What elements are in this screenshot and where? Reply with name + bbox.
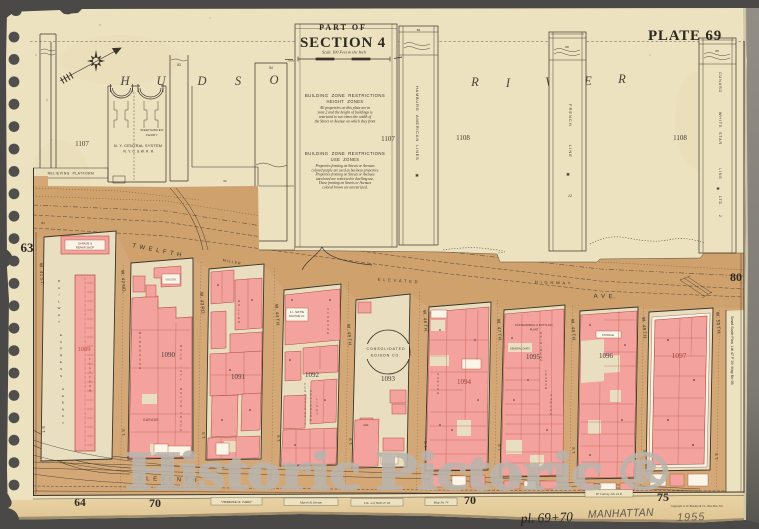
svg-text:1095: 1095 <box>526 353 541 361</box>
svg-text:86: 86 <box>417 28 421 32</box>
svg-text:Small Scale Plan Lib 47 P 39: Small Scale Plan Lib 47 P 39 Map No 98 <box>730 316 734 385</box>
svg-text:Copyright, G. W. Bromley & Co.: Copyright, G. W. Bromley & Co., New York… <box>671 505 724 508</box>
svg-text:R: R <box>139 340 141 344</box>
svg-text:✱: ✱ <box>415 173 419 178</box>
svg-text:1089: 1089 <box>78 346 91 353</box>
svg-text:G: G <box>550 394 552 397</box>
svg-text:E: E <box>60 360 62 364</box>
svg-text:X: X <box>60 340 62 344</box>
svg-text:the Street or Avenue on which: the Street or Avenue on which they front <box>315 120 377 124</box>
svg-text:F. L. SMITHE: F. L. SMITHE <box>290 311 305 314</box>
svg-text:H: H <box>119 74 130 88</box>
svg-text:O: O <box>327 316 329 319</box>
svg-text:O: O <box>238 304 240 307</box>
svg-text:BUILDING ZONE RESTRICTIONS: BUILDING ZONE RESTRICTIONS <box>305 151 385 156</box>
svg-text:63: 63 <box>21 240 35 255</box>
svg-text:STORAGE: STORAGE <box>602 334 615 337</box>
svg-text:W: W <box>58 306 61 310</box>
svg-text:R: R <box>437 381 439 384</box>
svg-text:USE ZONES: USE ZONES <box>331 157 360 162</box>
svg-text:R: R <box>550 402 552 405</box>
svg-text:O: O <box>89 381 91 384</box>
svg-text:H: H <box>139 349 141 353</box>
svg-text:M: M <box>238 300 240 303</box>
svg-text:1107: 1107 <box>75 140 89 148</box>
svg-text:HAMBURG AMERICAN LINES: HAMBURG AMERICAN LINES <box>415 86 420 160</box>
svg-text:FERRY: FERRY <box>146 133 158 137</box>
svg-text:HEIGHT ZONES: HEIGHT ZONES <box>326 99 363 104</box>
svg-text:E: E <box>60 333 62 337</box>
svg-text:G: G <box>437 388 439 391</box>
svg-text:1090: 1090 <box>161 351 176 359</box>
svg-text:O: O <box>139 353 141 357</box>
svg-text:H: H <box>310 404 312 407</box>
svg-text:S: S <box>139 362 141 366</box>
svg-text:CUNARD: CUNARD <box>718 72 722 93</box>
svg-text:M: M <box>180 388 182 391</box>
svg-text:R: R <box>180 405 182 408</box>
svg-text:S T.: S T. <box>121 429 126 437</box>
svg-text:N: N <box>62 407 64 411</box>
svg-text:GARAGE: GARAGE <box>143 418 159 422</box>
svg-text:I: I <box>505 76 511 90</box>
svg-text:WHITE STAR: WHITE STAR <box>718 112 722 145</box>
svg-text:1093: 1093 <box>381 375 396 383</box>
svg-text:N: N <box>310 415 312 418</box>
svg-text:S T.: S T. <box>41 426 46 434</box>
svg-text:D: D <box>310 419 312 422</box>
svg-text:62: 62 <box>223 179 227 183</box>
svg-text:N: N <box>304 394 306 397</box>
svg-text:1107: 1107 <box>381 135 395 143</box>
svg-text:PLATE 69: PLATE 69 <box>648 28 722 44</box>
svg-text:S: S <box>60 367 62 371</box>
svg-text:All properties on this plate a: All properties on this plate are in <box>319 106 370 110</box>
svg-text:R: R <box>89 385 91 388</box>
svg-text:I: I <box>59 293 60 297</box>
svg-text:✱: ✱ <box>566 172 570 177</box>
svg-text:1108: 1108 <box>673 134 687 142</box>
svg-text:N: N <box>180 370 182 373</box>
svg-text:1955: 1955 <box>677 511 706 524</box>
svg-text:12: 12 <box>568 194 572 198</box>
svg-text:L: L <box>58 299 60 303</box>
svg-text:1092: 1092 <box>305 371 320 379</box>
svg-text:1108: 1108 <box>456 134 470 142</box>
svg-text:E: E <box>62 401 64 405</box>
svg-text:U: U <box>180 420 182 423</box>
svg-text:PART OF: PART OF <box>319 23 367 32</box>
svg-text:LTD.: LTD. <box>718 196 722 207</box>
svg-text:1094: 1094 <box>457 378 472 386</box>
svg-text:E: E <box>139 344 141 348</box>
svg-text:REPAIR SHOP: REPAIR SHOP <box>76 246 94 250</box>
svg-text:N. Y. C. & W. R. R.: N. Y. C. & W. R. R. <box>123 150 154 154</box>
svg-text:1096: 1096 <box>599 352 614 360</box>
svg-text:2: 2 <box>718 215 722 217</box>
svg-text:88: 88 <box>565 45 569 49</box>
svg-text:N: N <box>304 390 306 393</box>
svg-text:M: M <box>89 390 91 393</box>
svg-text:R: R <box>238 321 240 324</box>
svg-text:restricted to two times the wi: restricted to two times the width of <box>319 115 373 119</box>
svg-text:N: N <box>316 405 318 408</box>
svg-text:Y: Y <box>62 421 64 425</box>
svg-text:88: 88 <box>715 49 719 53</box>
svg-text:N. Y. CENTRAL SYSTEM: N. Y. CENTRAL SYSTEM <box>114 143 162 148</box>
svg-text:pl. 69+70: pl. 69+70 <box>520 509 574 526</box>
svg-text:LINE: LINE <box>568 145 573 158</box>
svg-text:G: G <box>327 328 329 331</box>
svg-text:P: P <box>60 347 62 351</box>
svg-text:GENERAL DAIRY: GENERAL DAIRY <box>510 348 530 351</box>
svg-text:RELIEVING PLATFORM: RELIEVING PLATFORM <box>48 172 95 176</box>
svg-text:MACHINE CO.: MACHINE CO. <box>289 315 305 318</box>
svg-text:R: R <box>310 394 312 397</box>
svg-text:PASTEURIZING & BOTTLING: PASTEURIZING & BOTTLING <box>515 323 552 327</box>
svg-text:colored brown are unrestricted: colored brown are unrestricted. <box>322 186 367 190</box>
svg-text:S: S <box>60 374 62 378</box>
svg-text:O: O <box>310 408 312 411</box>
svg-text:Lib. 4 of Wills P. 18: Lib. 4 of Wills P. 18 <box>363 501 390 505</box>
svg-text:R: R <box>470 75 479 89</box>
svg-text:Scale 100 Feet to the Inch: Scale 100 Feet to the Inch <box>322 50 366 55</box>
svg-text:U: U <box>310 412 312 415</box>
svg-text:G: G <box>550 409 552 412</box>
svg-text:1091: 1091 <box>231 373 246 381</box>
svg-text:83: 83 <box>177 63 181 67</box>
svg-text:O: O <box>269 73 278 87</box>
svg-text:LINE: LINE <box>718 168 722 180</box>
svg-text:MANHATTAN: MANHATTAN <box>588 507 654 521</box>
svg-text:PLANT: PLANT <box>530 328 539 332</box>
svg-text:GARAGE &: GARAGE & <box>78 242 92 246</box>
svg-text:Y: Y <box>58 320 60 324</box>
svg-text:GAS STA.: GAS STA. <box>165 279 177 282</box>
svg-text:GAR.: GAR. <box>363 424 369 427</box>
svg-text:O: O <box>180 401 182 404</box>
svg-text:WEEHAWKEN: WEEHAWKEN <box>140 128 163 132</box>
svg-text:A: A <box>139 335 141 339</box>
svg-text:80: 80 <box>730 270 742 284</box>
svg-text:R: R <box>180 416 182 419</box>
svg-text:R: R <box>617 72 626 86</box>
svg-text:M: M <box>180 345 182 348</box>
svg-text:64: 64 <box>74 497 86 509</box>
svg-text:R: R <box>327 320 329 323</box>
svg-text:E: E <box>139 366 141 370</box>
svg-text:N: N <box>304 415 306 418</box>
svg-text:Leave: Leave <box>287 60 295 63</box>
svg-text:S T.: S T. <box>714 453 719 461</box>
svg-text:1097: 1097 <box>672 351 687 360</box>
svg-text:U: U <box>139 357 141 361</box>
svg-text:A V E.: A V E. <box>594 294 617 300</box>
svg-text:S T.: S T. <box>201 432 206 440</box>
svg-text:BUILDING ZONE RESTRICTIONS: BUILDING ZONE RESTRICTIONS <box>305 93 385 98</box>
svg-text:C: C <box>180 425 182 428</box>
svg-text:CONSOLIDATED: CONSOLIDATED <box>367 347 406 351</box>
svg-text:G: G <box>310 390 312 393</box>
svg-text:EDISON CO.: EDISON CO. <box>371 354 401 358</box>
svg-text:84: 84 <box>41 221 45 225</box>
svg-text:D: D <box>196 74 206 88</box>
svg-text:Historic Pictoric ®: Historic Pictoric ® <box>127 441 669 501</box>
svg-text:C: C <box>180 353 182 356</box>
svg-text:S: S <box>235 74 242 88</box>
svg-text:O: O <box>180 392 182 395</box>
svg-text:G: G <box>437 373 439 376</box>
svg-text:FRENCH: FRENCH <box>568 104 573 127</box>
svg-text:U: U <box>156 74 166 88</box>
svg-text:zone 2 and the height of build: zone 2 and the height of buildings is <box>317 111 373 115</box>
svg-text:84: 84 <box>269 66 273 70</box>
